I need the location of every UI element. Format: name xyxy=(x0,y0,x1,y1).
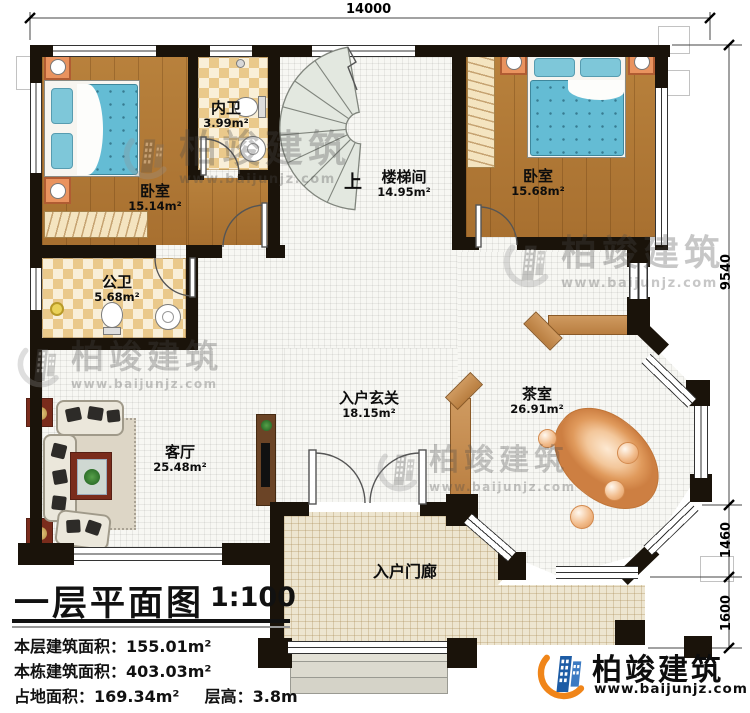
toilet xyxy=(101,302,123,328)
dim-right: 9540 xyxy=(706,250,746,294)
label-living-room: 客厅25.48m² xyxy=(153,443,206,475)
wall xyxy=(284,502,309,516)
wall xyxy=(30,245,156,258)
stone-sphere xyxy=(617,442,639,464)
stat-footprint-height: 占地面积：169.34m² 层高：3.8m xyxy=(14,683,298,707)
plan-scale: 1:100 xyxy=(210,582,296,613)
label-bedroom1: 卧室15.14m² xyxy=(128,182,181,214)
wall xyxy=(194,245,222,258)
shower-head xyxy=(236,59,245,68)
tv xyxy=(261,443,270,487)
wall xyxy=(18,543,74,565)
wall xyxy=(266,245,285,258)
stone-sphere xyxy=(538,429,557,448)
wall xyxy=(268,45,280,245)
window xyxy=(30,268,42,310)
label-tea-room: 茶室26.91m² xyxy=(510,385,563,417)
bedroom1-floor-ext xyxy=(188,178,268,245)
wood-screen xyxy=(450,398,471,504)
wardrobe xyxy=(467,48,495,168)
window xyxy=(655,88,668,245)
toilet-tank xyxy=(258,96,266,118)
wall xyxy=(186,245,198,350)
lamp xyxy=(50,302,64,316)
label-entry-hall: 入户玄关18.15m² xyxy=(339,389,399,421)
wall xyxy=(690,474,712,502)
wall xyxy=(188,170,204,180)
wall xyxy=(452,237,479,250)
pillow xyxy=(51,133,73,169)
wall xyxy=(270,502,284,645)
wall xyxy=(30,338,198,350)
pillow xyxy=(580,58,621,77)
dim-right: 1460 xyxy=(706,518,746,562)
stone-sphere xyxy=(604,480,625,501)
wall xyxy=(447,638,477,668)
dim-top: 14000 xyxy=(346,2,391,17)
nightstand xyxy=(44,53,71,80)
bed xyxy=(527,48,626,158)
label-bedroom2: 卧室15.68m² xyxy=(511,167,564,199)
stone-sphere xyxy=(570,505,594,529)
label-stair-up: 上 xyxy=(344,172,362,194)
plant xyxy=(261,420,272,431)
label-stairwell: 楼梯间14.95m² xyxy=(377,168,430,200)
stat-building-area: 本栋建筑面积：403.03m² xyxy=(14,658,211,682)
tv-wall xyxy=(256,414,276,506)
title-underline xyxy=(12,619,290,623)
wall xyxy=(452,45,466,250)
sofa xyxy=(56,400,124,436)
roof-outline xyxy=(666,70,690,96)
window xyxy=(30,83,42,173)
window xyxy=(53,45,156,57)
brand-url: www.baijunjz.com xyxy=(594,681,748,697)
window xyxy=(629,263,648,299)
brand-logo-icon xyxy=(536,646,590,702)
pillow xyxy=(51,88,73,124)
pillow xyxy=(534,58,575,77)
window xyxy=(210,45,252,57)
dim-right: 1600 xyxy=(706,591,746,635)
coffee-table xyxy=(70,452,112,500)
window xyxy=(288,641,447,654)
window xyxy=(694,406,708,478)
sink xyxy=(240,136,266,162)
window xyxy=(556,566,638,579)
window xyxy=(312,45,415,57)
plant xyxy=(84,469,100,485)
label-inner-bath: 内卫3.99m² xyxy=(203,99,248,131)
entry-floor xyxy=(284,348,458,502)
toilet-tank xyxy=(103,327,121,335)
title-underline-thin xyxy=(12,626,290,628)
label-public-bath: 公卫5.68m² xyxy=(94,273,139,305)
floor-plan: 14000 9540 1460 1600 卧室15.14m² 内卫3.99m² … xyxy=(0,0,750,713)
wood-screen xyxy=(548,315,632,335)
stat-floor-area: 本层建筑面积：155.01m² xyxy=(14,633,211,657)
bed xyxy=(44,80,140,177)
wall xyxy=(258,638,292,668)
label-porch: 入户门廊 xyxy=(373,562,437,581)
wall xyxy=(188,57,198,178)
window xyxy=(74,547,222,561)
wall xyxy=(615,620,645,645)
nightstand xyxy=(44,177,71,204)
sink xyxy=(155,304,181,330)
wall xyxy=(517,237,630,250)
wardrobe xyxy=(44,211,148,238)
